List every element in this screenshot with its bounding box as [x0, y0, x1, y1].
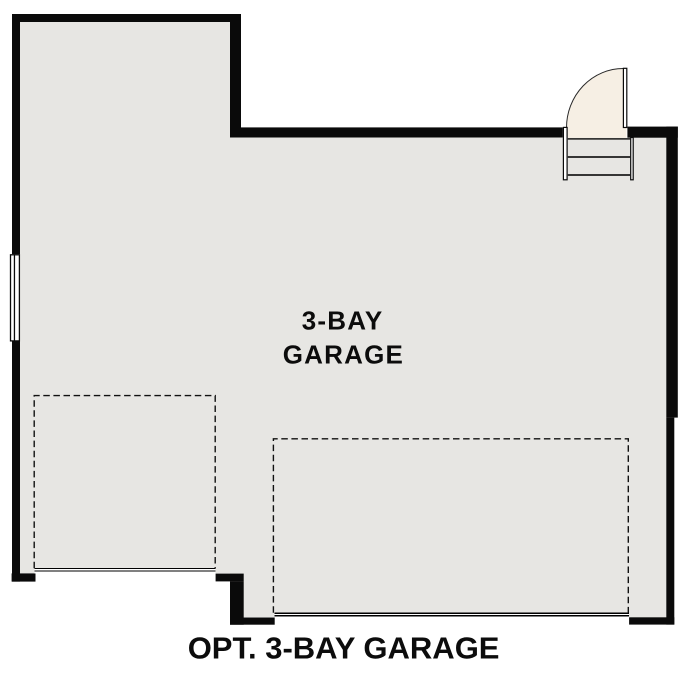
svg-text:3-BAY: 3-BAY: [302, 305, 384, 335]
svg-text:GARAGE: GARAGE: [283, 340, 404, 370]
svg-text:OPT. 3-BAY GARAGE: OPT. 3-BAY GARAGE: [188, 630, 500, 665]
